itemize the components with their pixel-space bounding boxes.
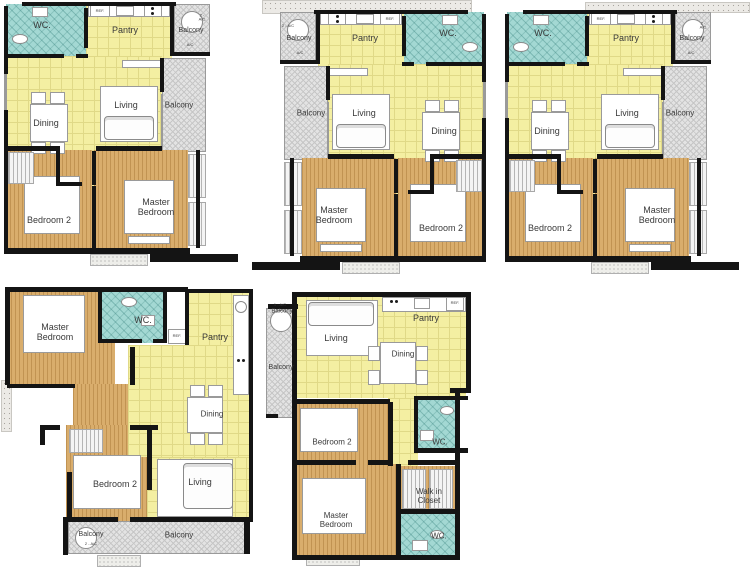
furniture-hatch (69, 429, 103, 453)
label-living: Living (324, 334, 348, 344)
wall-segment (56, 151, 60, 185)
label-master-bedroom: Master Bedroom (37, 323, 74, 343)
floor-plan-unit-a-top-left: WC.PantryBalcony2 - A/CA/CREF.LivingDini… (4, 2, 210, 268)
label-bedroom-2: Bedroom 2 (93, 480, 137, 490)
label-pantry: Pantry (613, 34, 639, 44)
furniture-rect (190, 385, 205, 397)
wall-segment (661, 66, 665, 100)
furniture-rect (617, 14, 635, 24)
wall-segment (577, 62, 589, 66)
furniture-ellipse (440, 406, 454, 415)
label-master-bedroom: Master Bedroom (138, 198, 175, 218)
label-pantry: Pantry (112, 26, 138, 36)
wall-segment (147, 427, 152, 490)
wall-segment (671, 60, 711, 64)
floor-plan-unit-b-bottom-left: Master BedroomWC.PantryREF.DiningLivingB… (5, 287, 253, 568)
label-ref: REF. (597, 17, 606, 21)
furniture-ellipse (513, 42, 529, 52)
wall-segment (316, 10, 320, 64)
wall-segment (56, 182, 82, 186)
wall-segment (130, 517, 250, 522)
wall-segment (402, 16, 406, 56)
wall-segment (163, 292, 167, 343)
wall-segment (430, 159, 434, 193)
wall-segment (597, 154, 663, 159)
furniture-rect (380, 342, 416, 384)
furniture-win (662, 102, 664, 158)
furniture-dot (395, 300, 398, 303)
wall-segment (292, 555, 455, 560)
furniture-rect (425, 100, 440, 112)
label-balcony: Balcony (666, 110, 694, 119)
furniture-rect (122, 60, 164, 68)
wall-segment (130, 347, 135, 385)
furniture-rect (444, 100, 459, 112)
label-living: Living (114, 101, 138, 111)
wall-segment (290, 158, 294, 256)
wall-segment (505, 154, 561, 159)
wall-segment (68, 517, 118, 522)
furniture-rect (208, 385, 223, 397)
furniture-hatch (456, 160, 482, 192)
label-bedroom-2: Bedroom 2 (419, 224, 463, 234)
wall-segment (160, 58, 164, 92)
label-balcony: Balcony (680, 35, 705, 43)
wall-segment (430, 154, 486, 159)
furniture-rect (416, 346, 428, 361)
wall-segment (455, 392, 460, 560)
wall-segment (102, 339, 142, 343)
wall-segment (450, 388, 471, 393)
furniture-win (505, 82, 508, 118)
furniture-sofa (336, 124, 386, 148)
furniture-dot (652, 15, 655, 18)
room-tile-floor (400, 512, 456, 558)
wall-segment (153, 339, 163, 343)
furniture-rect (368, 370, 380, 385)
furniture-dot (237, 359, 240, 362)
floor-plan-unit-c-bottom-middle: 1 - A/CBalconyBalconyLivingPantryREF.Din… (262, 292, 472, 568)
label-bedroom-2: Bedroom 2 (528, 224, 572, 234)
furniture-dot (652, 20, 655, 23)
furniture-ellipse (12, 34, 28, 44)
wall-segment (249, 293, 253, 392)
wall-segment (368, 460, 392, 465)
furniture-rect (31, 92, 46, 104)
furniture-dot (151, 7, 154, 10)
label-living: Living (352, 109, 376, 119)
wall-segment (408, 460, 456, 465)
furniture-rect (368, 346, 380, 361)
label-balcony: Balcony (79, 531, 104, 539)
furniture-hatch (8, 152, 34, 184)
wall-segment (651, 262, 739, 270)
wall-segment (76, 54, 88, 58)
wall-segment (426, 62, 484, 66)
wall-segment (252, 262, 340, 270)
wall-segment (185, 292, 189, 345)
wall-segment (67, 472, 72, 522)
furniture-circle (235, 301, 247, 313)
wall-segment (4, 248, 96, 254)
wall-segment (593, 194, 597, 258)
furniture-mat (90, 254, 148, 266)
wall-segment (196, 150, 200, 248)
furniture-dot (242, 359, 245, 362)
furniture-rect (416, 370, 428, 385)
wall-segment (482, 66, 486, 82)
furniture-rect (320, 244, 362, 252)
wall-segment (4, 110, 8, 252)
wall-segment (505, 66, 509, 82)
furniture-rect (533, 15, 549, 25)
wall-segment (394, 159, 398, 193)
wall-segment (414, 400, 418, 452)
label-pantry: Pantry (413, 314, 439, 324)
wall-segment (314, 10, 468, 14)
wall-segment (482, 118, 486, 260)
wall-segment (671, 10, 675, 64)
furniture-ellipse (462, 42, 478, 52)
label-wc: WC. (33, 21, 51, 31)
label-bedroom-2: Bedroom 2 (312, 439, 351, 448)
furniture-rect (32, 7, 48, 17)
wall-segment (170, 52, 210, 56)
furniture-rect (629, 244, 671, 252)
label-2-a-c: 2 - A/C (85, 542, 97, 546)
label-ref: REF. (173, 334, 182, 338)
label-bedroom-2: Bedroom 2 (27, 216, 71, 226)
wall-segment (388, 402, 393, 466)
label-dining: Dining (33, 119, 59, 129)
furniture-hatch (509, 160, 535, 192)
wall-segment (98, 292, 102, 343)
furniture-rect (190, 433, 205, 445)
label-master-bedroom: Master Bedroom (639, 206, 676, 226)
label-pantry: Pantry (202, 333, 228, 343)
wall-segment (92, 151, 96, 185)
label-balcony: Balcony (269, 364, 294, 372)
furniture-rect (414, 298, 430, 309)
furniture-rect (442, 15, 458, 25)
wall-segment (170, 2, 174, 56)
wall-segment (63, 517, 68, 555)
wall-segment (585, 16, 589, 56)
label-walk-in-closet: Walk in Closet (416, 488, 442, 506)
wall-segment (398, 509, 456, 514)
floor-plan-unit-a-top-middle: WC.PantryBalcony2 - A/CA/CREF.LivingDini… (280, 10, 486, 276)
label-balcony: Balcony (297, 110, 325, 119)
label-living: Living (615, 109, 639, 119)
label-living: Living (188, 478, 212, 488)
label-2-a-c: 2 - A/C (699, 22, 707, 31)
wall-segment (188, 289, 253, 293)
label-master-bedroom: Master Bedroom (320, 512, 352, 530)
wall-segment (505, 14, 509, 66)
wall-segment (394, 256, 486, 262)
label-balcony: Balcony (165, 102, 193, 111)
wall-segment (5, 292, 10, 385)
wall-segment (557, 190, 583, 194)
wall-segment (22, 2, 176, 6)
wall-segment (292, 460, 356, 465)
furniture-dot (336, 20, 339, 23)
wall-segment (295, 399, 390, 404)
label-pantry: Pantry (352, 34, 378, 44)
label-wc: WC. (534, 29, 552, 39)
label-balcony: Balcony (165, 532, 193, 541)
furniture-rect (326, 68, 368, 76)
wall-segment (4, 146, 60, 151)
wall-segment (7, 384, 75, 388)
wall-segment (244, 522, 250, 554)
wall-segment (5, 287, 188, 292)
label-ref: REF. (451, 301, 460, 305)
label-dining: Dining (392, 351, 415, 360)
floor-plan-sheet: WC.PantryBalcony2 - A/CA/CREF.LivingDini… (0, 0, 751, 568)
wall-segment (4, 6, 8, 58)
furniture-rect (532, 100, 547, 112)
label-dining: Dining (431, 127, 457, 137)
furniture-rect (128, 236, 170, 244)
wall-segment (557, 159, 561, 193)
furniture-sofa (308, 302, 374, 326)
furniture-rect (208, 433, 223, 445)
wall-segment (593, 159, 597, 193)
furniture-mat (591, 262, 649, 274)
wall-segment (523, 10, 677, 14)
furniture-rect (412, 540, 428, 551)
label-dining: Dining (201, 411, 224, 420)
wall-segment (697, 158, 701, 256)
wall-segment (394, 194, 398, 258)
furniture-rect (356, 14, 374, 24)
wall-segment (150, 254, 238, 262)
furniture-rect (50, 92, 65, 104)
label-balcony: Balcony (287, 35, 312, 43)
furniture-sofa (605, 124, 655, 148)
furniture-rect (551, 100, 566, 112)
wall-segment (505, 118, 509, 260)
furniture-win (327, 102, 329, 158)
wall-segment (6, 54, 64, 58)
label-dining: Dining (534, 127, 560, 137)
furniture-mat (342, 262, 400, 274)
furniture-win (483, 82, 486, 118)
label-2-a-c: 2 - A/C (282, 24, 294, 28)
wall-segment (402, 62, 414, 66)
wall-segment (292, 404, 297, 560)
furniture-ellipse (121, 297, 137, 307)
wall-segment (482, 14, 486, 66)
wall-segment (40, 425, 45, 445)
furniture-mat (97, 555, 141, 567)
furniture-rect (623, 68, 665, 76)
label-1-a-c: 1 - A/C (274, 303, 286, 307)
label-a-c: A/C (297, 51, 304, 55)
label-wc: WC. (439, 29, 457, 39)
wall-segment (266, 414, 278, 418)
label-ref: REF. (96, 9, 105, 13)
furniture-rect (116, 6, 134, 16)
floor-plan-unit-a-top-right: WC.PantryBalcony2 - A/CA/CREF.LivingDini… (505, 10, 711, 276)
label-master-bedroom: Master Bedroom (316, 206, 353, 226)
wall-segment (96, 146, 162, 151)
label-wc: WC. (431, 533, 447, 542)
wall-segment (84, 8, 88, 48)
label-a-c: A/C (187, 43, 194, 47)
label-a-c: A/C (688, 51, 695, 55)
furniture-win (4, 74, 7, 110)
wall-segment (328, 154, 394, 159)
label-balcony: Balcony (271, 309, 292, 316)
room-wood-floor (73, 384, 135, 425)
label-wc: WC. (134, 316, 152, 326)
furniture-dot (336, 15, 339, 18)
label-wc: WC. (432, 439, 448, 448)
wall-segment (505, 256, 597, 262)
wall-segment (408, 190, 434, 194)
wall-segment (4, 58, 8, 74)
label-balcony: Balcony (179, 27, 204, 35)
wall-segment (466, 292, 471, 392)
label-ref: REF. (386, 17, 395, 21)
furniture-sofa (104, 116, 154, 140)
wall-segment (92, 186, 96, 250)
wall-segment (295, 292, 466, 297)
wall-segment (130, 425, 158, 430)
furniture-win (161, 94, 163, 150)
wall-segment (326, 66, 330, 100)
label-2-a-c: 2 - A/C (198, 14, 206, 23)
furniture-dot (390, 300, 393, 303)
furniture-dot (151, 12, 154, 15)
wall-segment (280, 60, 320, 64)
wall-segment (249, 392, 253, 522)
wall-segment (507, 62, 565, 66)
